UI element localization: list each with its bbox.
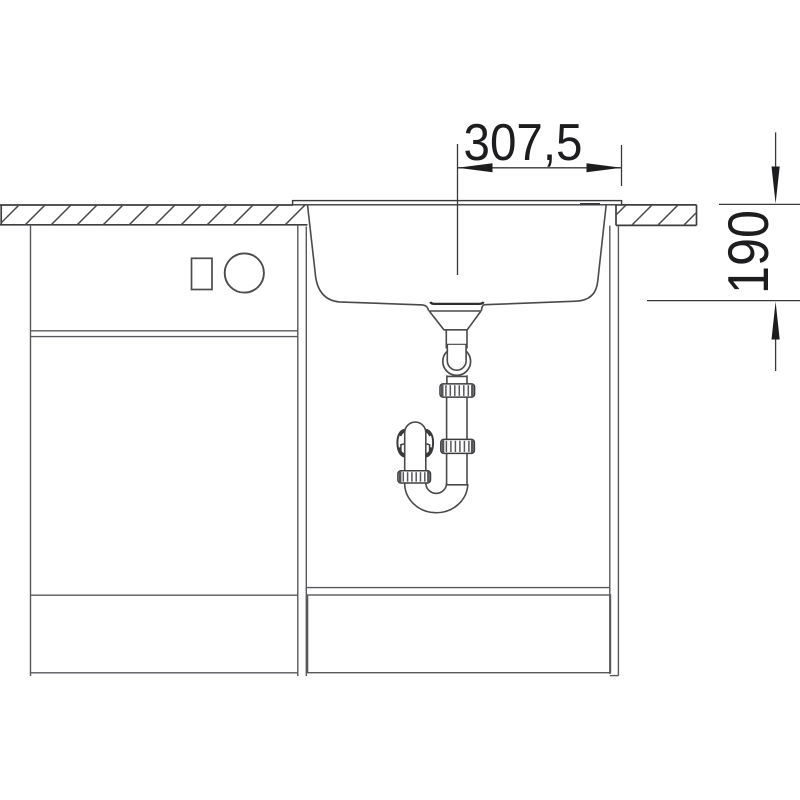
svg-text:190: 190 [717,210,781,294]
svg-text:307,5: 307,5 [464,114,583,172]
